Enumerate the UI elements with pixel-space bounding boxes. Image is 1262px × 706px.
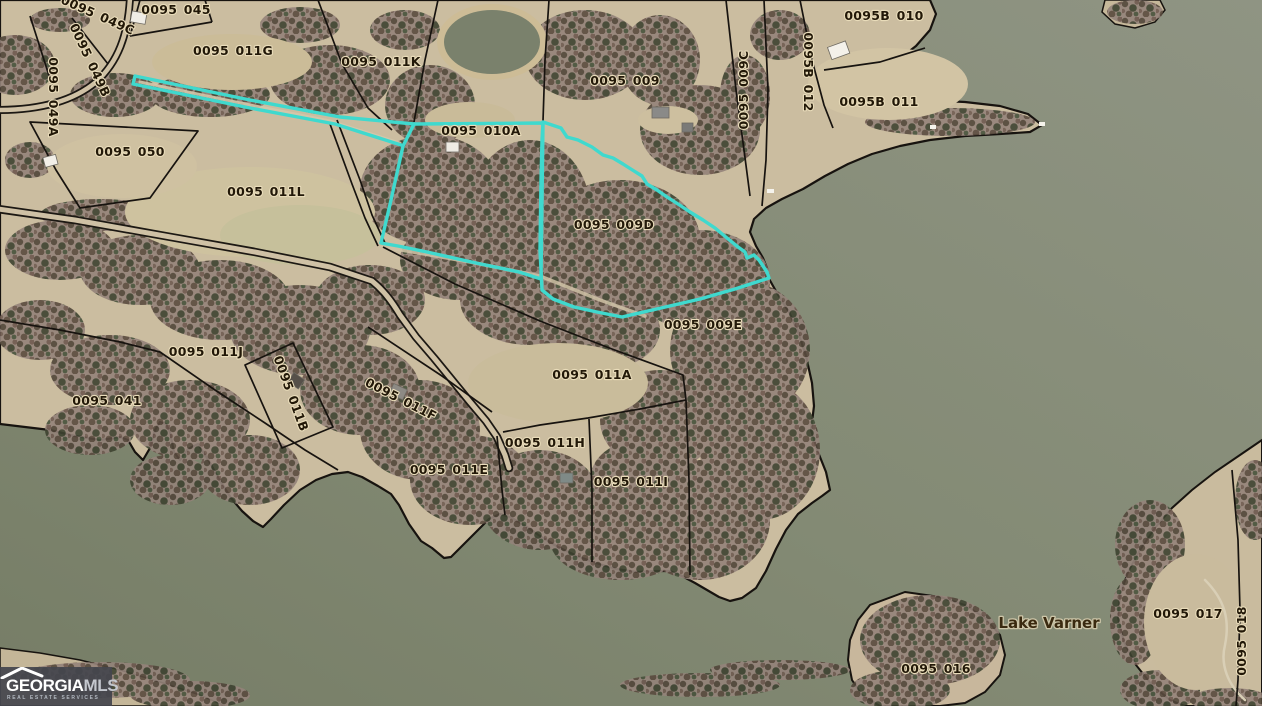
parcel-label: 0095 050 (95, 144, 165, 159)
parcel-label: 0095 009E (664, 317, 742, 332)
parcel-label: 0095B 012 (801, 32, 816, 111)
parcel-label: 0095 011E (410, 462, 488, 477)
parcel-label: 0095B 011 (839, 94, 918, 109)
pond (444, 10, 540, 74)
parcel-label: 0095 011G (193, 43, 273, 58)
parcel-label: 0095 009 (590, 73, 660, 88)
parcel-label: 0095B 010 (844, 8, 923, 23)
parcel-label: 0095 009D (574, 217, 654, 232)
parcel-label: 0095 011K (341, 54, 422, 69)
parcel-label: 0095 018 (1234, 606, 1249, 676)
logo-tagline: REAL ESTATE SERVICES (7, 695, 99, 701)
parcel-label: 0095 017 (1153, 606, 1223, 621)
parcel-label: 0095 011L (227, 184, 305, 199)
parcel-label: 0095 011I (594, 474, 668, 489)
parcel-label: 0095 016 (901, 661, 971, 676)
parcel-label: 0095 009C (736, 50, 751, 129)
parcel-label: 0095 045 (141, 2, 211, 17)
parcel-label: 0095 010A (441, 123, 521, 138)
parcel-label: 0095 049A (46, 57, 61, 137)
logo-brand-secondary: MLS (84, 676, 119, 695)
georgiamls-logo: GEORGIAMLS REAL ESTATE SERVICES (0, 667, 112, 706)
parcel-label: 0095 011J (169, 344, 243, 359)
lake-name-label: Lake Varner (998, 614, 1100, 632)
parcel-label: 0095 011H (505, 435, 585, 450)
parcel-label: 0095 041 (72, 393, 142, 408)
parcel-label: 0095 011A (552, 367, 632, 382)
logo-brand-primary: GEORGIA (6, 676, 84, 695)
map-viewport[interactable]: 0095 049C0095 0450095 049A0095 049B0095 … (0, 0, 1262, 706)
parcel-map-canvas[interactable]: 0095 049C0095 0450095 049A0095 049B0095 … (0, 0, 1262, 706)
